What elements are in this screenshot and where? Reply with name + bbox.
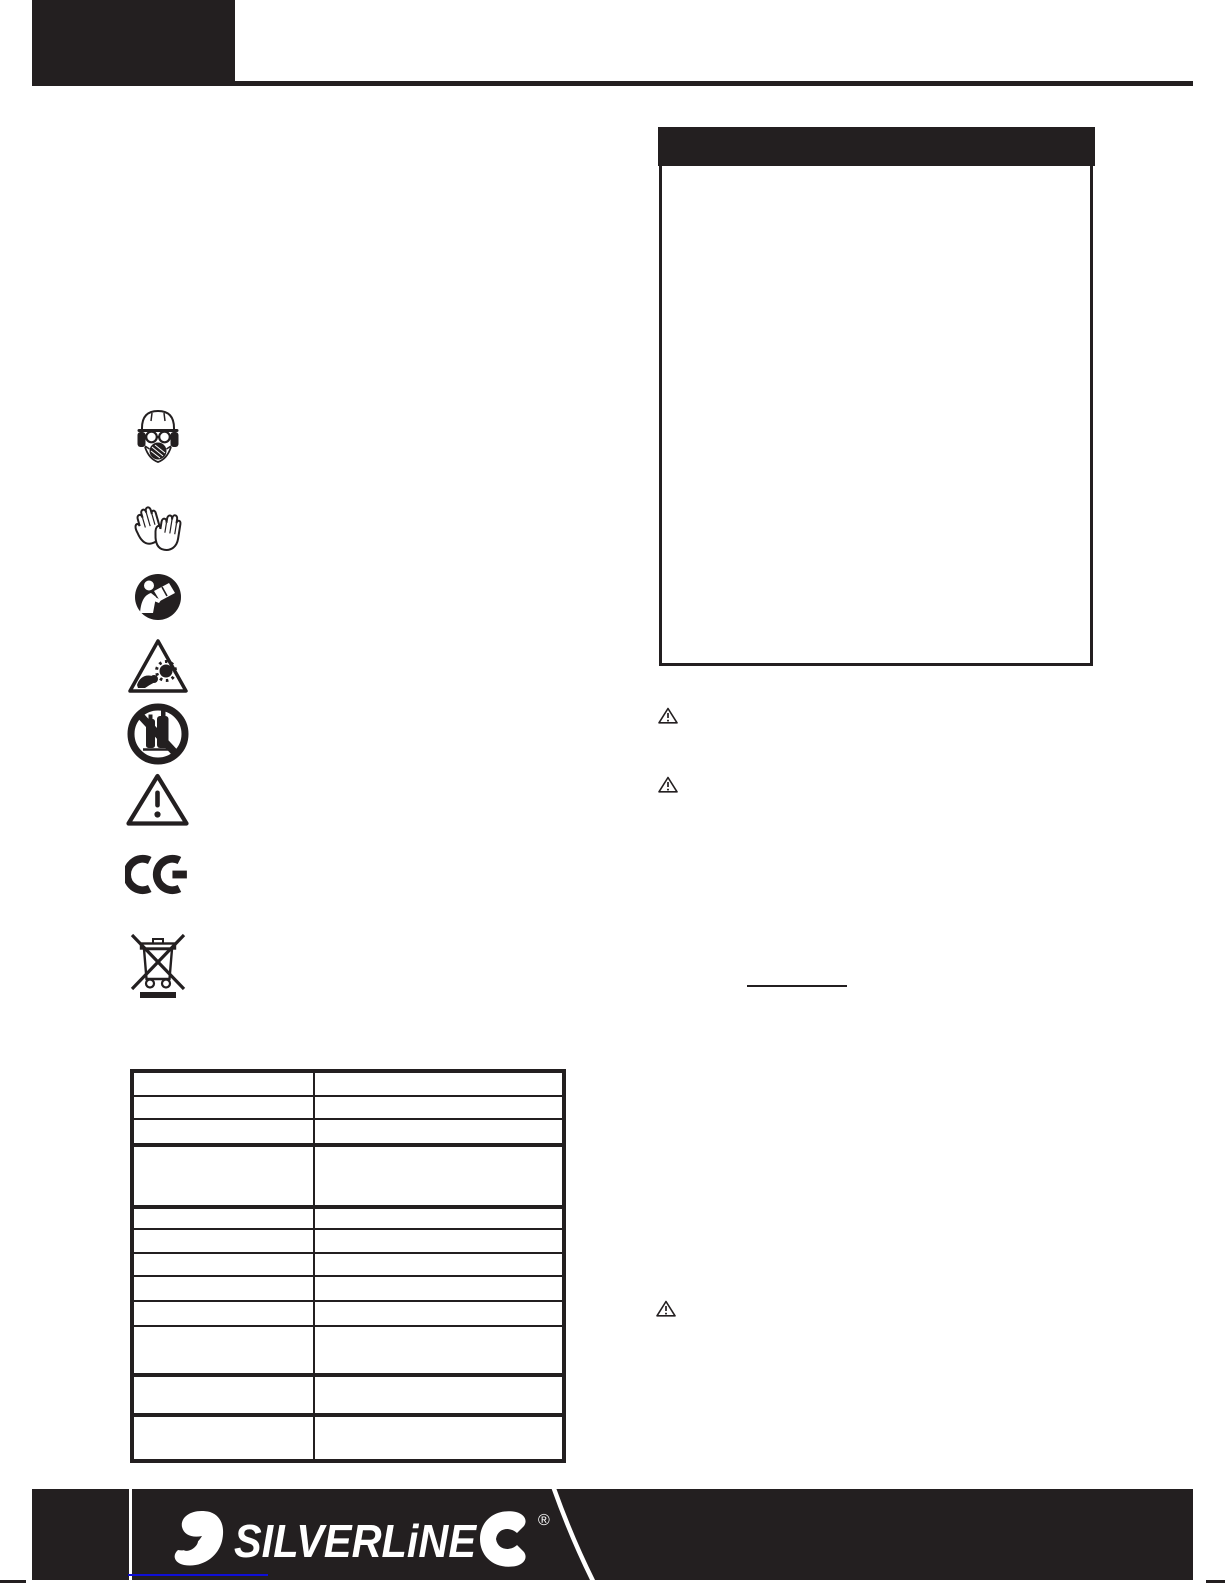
footer-divider-line xyxy=(129,1489,132,1580)
masthead-title-block xyxy=(32,0,235,86)
table-row-separator xyxy=(134,1300,562,1302)
wear-head-ear-eye-respiratory-protection-icon xyxy=(137,406,179,464)
footer-brand-banner: SILVERLiNE ® xyxy=(32,1489,1193,1580)
brand-wordmark: SILVERLiNE xyxy=(234,1515,477,1567)
entanglement-hazard-warning-icon xyxy=(128,638,188,694)
table-row-separator xyxy=(134,1118,562,1120)
table-column-divider xyxy=(313,1073,315,1459)
table-row-separator xyxy=(134,1228,562,1230)
specification-table xyxy=(130,1069,566,1463)
table-row-separator xyxy=(134,1325,562,1327)
crop-mark-left xyxy=(0,1580,26,1583)
warning-triangle-icon xyxy=(658,776,678,794)
ce-conformity-mark-icon xyxy=(125,851,191,898)
wear-protective-gloves-icon xyxy=(131,499,185,555)
table-row-separator xyxy=(134,1373,562,1377)
no-compressed-gas-cylinders-icon xyxy=(127,701,189,767)
general-warning-icon xyxy=(126,772,189,828)
table-row-separator xyxy=(134,1095,562,1097)
panel-box xyxy=(659,166,1093,666)
table-row-separator xyxy=(134,1205,562,1209)
warning-triangle-icon xyxy=(658,707,678,725)
link-underline[interactable] xyxy=(128,1574,268,1576)
underlined-blank xyxy=(747,985,847,987)
table-row-separator xyxy=(134,1252,562,1254)
wrench-left-icon xyxy=(175,1511,223,1565)
table-row-separator xyxy=(134,1413,562,1417)
warning-triangle-icon xyxy=(656,1300,676,1318)
wrench-right-icon xyxy=(480,1511,526,1566)
crop-mark-right xyxy=(1206,1580,1225,1583)
read-instruction-manual-icon xyxy=(134,572,182,622)
silverline-logo: SILVERLiNE ® xyxy=(175,1511,550,1567)
footer-banner-art: SILVERLiNE ® xyxy=(32,1489,1193,1580)
table-row-separator xyxy=(134,1275,562,1277)
table-row-separator xyxy=(134,1143,562,1147)
registered-symbol: ® xyxy=(538,1512,550,1529)
manual-page: SILVERLiNE ® xyxy=(0,0,1225,1585)
footer-swoosh-arc xyxy=(553,1489,594,1580)
weee-crossed-out-wheelie-bin-icon xyxy=(127,922,189,998)
masthead-rule xyxy=(235,81,1193,86)
panel-header-bar xyxy=(658,127,1095,166)
